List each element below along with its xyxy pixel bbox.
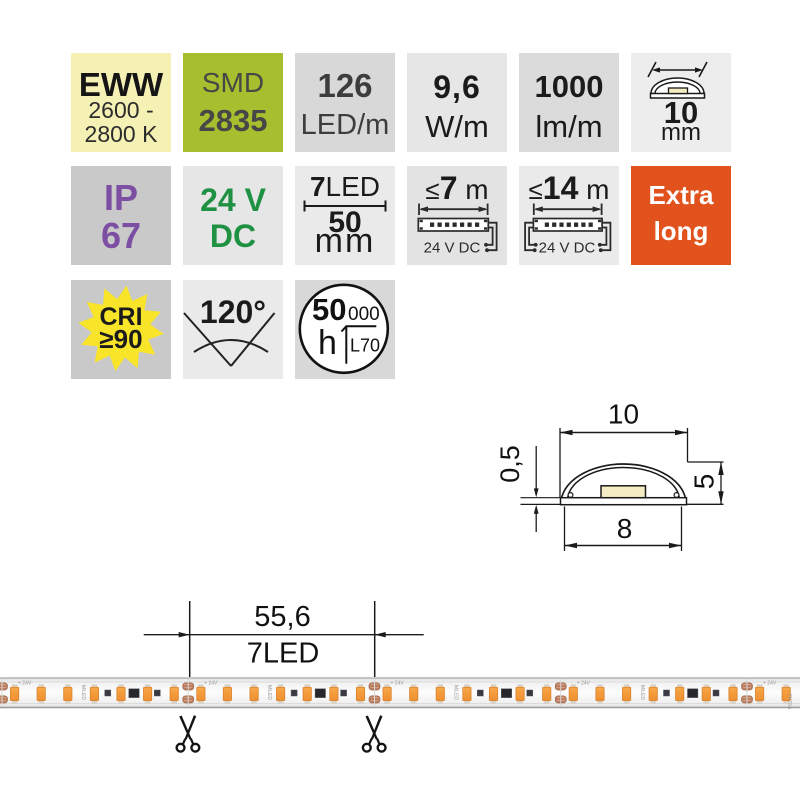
svg-text:MiLED: MiLED: [639, 685, 645, 700]
svg-text:+ 24V: + 24V: [18, 681, 32, 687]
svg-text:L70: L70: [350, 335, 380, 355]
svg-text:50: 50: [312, 292, 346, 327]
svg-text:000: 000: [348, 304, 380, 325]
svg-text:0,5: 0,5: [495, 445, 525, 483]
svg-text:10: 10: [608, 399, 639, 430]
svg-text:24 V DC: 24 V DC: [539, 240, 596, 257]
svg-text:+ 24V: + 24V: [577, 681, 591, 687]
svg-text:8: 8: [617, 513, 633, 544]
svg-text:24 V DC: 24 V DC: [424, 240, 481, 257]
svg-text:FK76A: FK76A: [786, 694, 792, 710]
svg-text:MiLED: MiLED: [453, 685, 459, 700]
svg-text:MiLED: MiLED: [266, 685, 272, 700]
svg-text:+ 24V: + 24V: [391, 681, 405, 687]
svg-text:+ 24V: + 24V: [763, 681, 777, 687]
svg-text:7LED: 7LED: [247, 638, 320, 670]
svg-text:h: h: [318, 324, 337, 362]
svg-text:5: 5: [689, 474, 720, 490]
svg-text:55,6: 55,6: [254, 601, 310, 633]
svg-text:MiLED: MiLED: [80, 685, 86, 700]
svg-text:+ 24V: + 24V: [204, 681, 218, 687]
